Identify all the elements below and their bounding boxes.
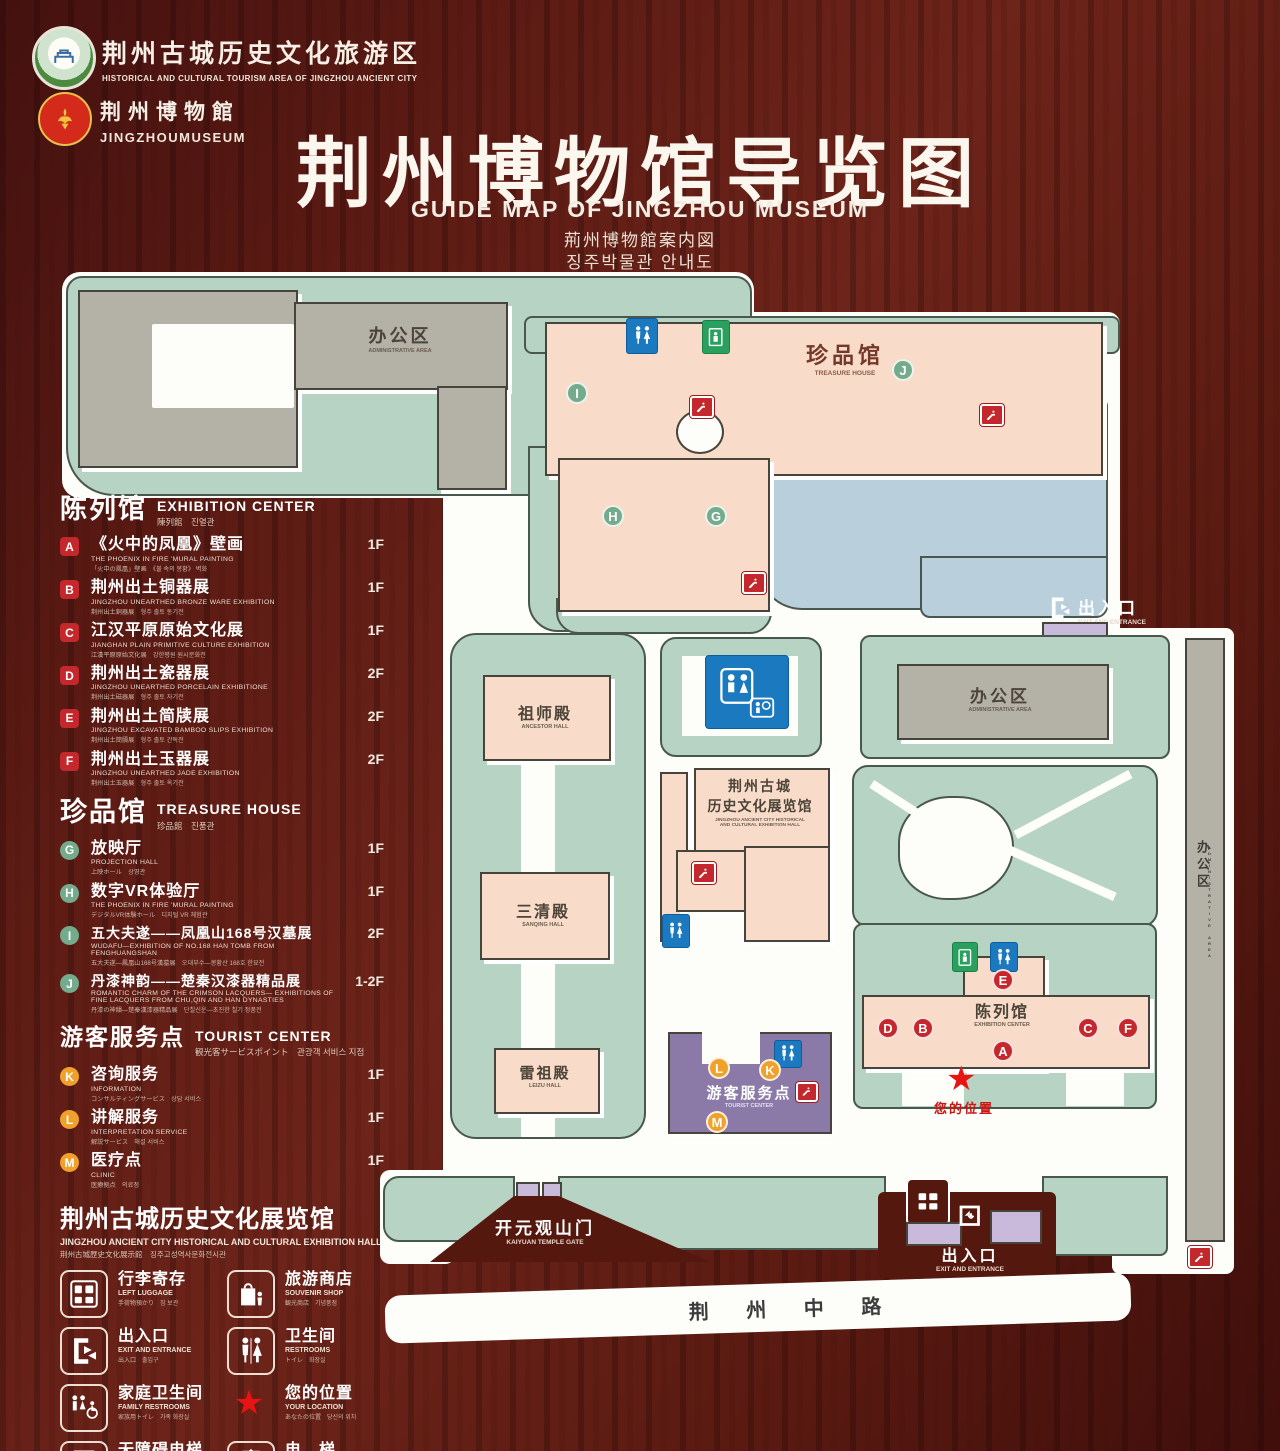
map-marker-m: M (706, 1111, 728, 1133)
map-marker-h: H (602, 505, 624, 527)
elevator-icon (227, 1441, 275, 1451)
marker-badge-g: G (60, 841, 79, 860)
legend-panel: 陈列馆 EXHIBITION CENTER 陳列館 진열관 A 《火中的凤凰》壁… (60, 496, 384, 1451)
museum-logo-title: 荆州博物館 (100, 96, 246, 126)
city-gate-emblem-icon (49, 43, 79, 73)
marker-badge-c: C (60, 623, 79, 642)
grounds-gate-right (1042, 1176, 1168, 1256)
ancestor-hall-label: 祖师殿 ANCESTOR HALL (483, 700, 607, 730)
admin-courtyard (152, 324, 294, 408)
marker-badge-a: A (60, 537, 79, 556)
legend-accessible-elevator: 无障碍电梯ACCESSIBLE ELEVATORバリアフリーエレベーター 무장애… (60, 1441, 217, 1451)
exit-door-icon (60, 1327, 108, 1375)
legend-item-i: I 五大夫遂——凤凰山168号汉墓展WUDAFU—EXHIBITION OF N… (60, 925, 384, 966)
map-marker-g: G (705, 505, 727, 527)
tourism-area-logo (32, 26, 96, 90)
treasure-house-label: 珍品馆 TREASURE HOUSE (745, 338, 945, 377)
marker-badge-b: B (60, 580, 79, 599)
legend-item-a: A 《火中的凤凰》壁画THE PHOENIX IN FIRE 'MURAL PA… (60, 536, 384, 572)
left-luggage-icon (906, 1178, 950, 1226)
map-marker-b: B (912, 1017, 934, 1039)
page-title-ko: 징주박물관 안내도 (280, 248, 1000, 273)
treasure-house-lower-block (558, 458, 770, 612)
restroom-icon (626, 318, 658, 354)
souvenir-shop-icon (227, 1270, 275, 1318)
legend-item-e: E 荆州出土简牍展JINGZHOU EXCAVATED BAMBOO SLIPS… (60, 708, 384, 744)
legend-restrooms: 卫生间RESTROOMSトイレ 화장실 (227, 1327, 384, 1375)
restroom-icon (662, 914, 690, 948)
marker-badge-e: E (60, 709, 79, 728)
marker-badge-d: D (60, 666, 79, 685)
escalator-icon (692, 862, 716, 884)
restroom-icon (990, 942, 1018, 972)
map-marker-f: F (1117, 1017, 1139, 1039)
admin-building-arm (437, 386, 507, 490)
legend-exit-entrance: 出入口EXIT AND ENTRANCE出入口 출입구 (60, 1327, 217, 1375)
marker-badge-m: M (60, 1153, 79, 1172)
marker-badge-i: I (60, 926, 79, 945)
legend-souvenir-shop: 旅游商店SOUVENIR SHOP観光商店 기념품점 (227, 1270, 384, 1318)
road-label: 荆 州 中 路 (618, 1289, 897, 1327)
escalator-icon (742, 572, 766, 594)
marker-badge-h: H (60, 884, 79, 903)
sanqing-hall-label: 三清殿 SANQING HALL (480, 898, 606, 928)
escalator-icon (980, 404, 1004, 426)
legend-your-location: ★ 您的位置YOUR LOCATIONあなたの位置 당신의 위치 (227, 1384, 384, 1432)
map-marker-d: D (877, 1017, 899, 1039)
admin-strip-label-en: ADMINISTRATIVE AREA (1207, 845, 1212, 995)
legend-item-f: F 荆州出土玉器展JINGZHOU UNEARTHED JADE EXHIBIT… (60, 751, 384, 787)
city-hall-label: 荆州古城 历史文化展览馆 JINGZHOU ANCIENT CITY HISTO… (692, 776, 828, 828)
exit-door-icon (1046, 594, 1074, 622)
legend-hall-header: 荆州古城历史文化展览馆 JINGZHOU ANCIENT CITY HISTOR… (60, 1199, 384, 1260)
left-luggage-icon (60, 1270, 108, 1318)
phoenix-emblem-icon (51, 105, 79, 133)
marker-badge-l: L (60, 1110, 79, 1129)
elevator-icon (952, 942, 978, 972)
escalator-icon (690, 396, 714, 418)
tourism-area-subtitle: HISTORICAL AND CULTURAL TOURISM AREA OF … (102, 74, 421, 83)
leizu-hall-label: 雷祖殿 LEIZU HALL (494, 1062, 596, 1089)
accessible-elevator-icon (60, 1441, 108, 1451)
your-location-label: 您的位置 (918, 1098, 1010, 1117)
exit-bottom-label: 出入口 EXIT AND ENTRANCE (910, 1242, 1030, 1273)
legend-section-exhibition: 陈列馆 EXHIBITION CENTER 陳列館 진열관 (60, 496, 384, 528)
your-location-star-icon: ★ (227, 1384, 271, 1422)
legend-elevator: 电 梯ELEVATORエレベーター 엘리베이터 (227, 1441, 384, 1451)
elevator-icon (702, 320, 730, 354)
restroom-icon (227, 1327, 275, 1375)
legend-section-tourist: 游客服务点 TOURIST CENTER 観光客サービスポイント 관광객 서비스… (60, 1026, 384, 1058)
tourism-area-title: 荆州古城历史文化旅游区 (102, 34, 421, 70)
tourist-center-label: 游客服务点 TOURIST CENTER (684, 1082, 814, 1109)
legend-section-treasure: 珍品馆 TREASURE HOUSE 珍品館 진품관 (60, 799, 384, 831)
legend-item-j: J 丹漆神韵——楚秦汉漆器精品展ROMANTIC CHARM OF THE CR… (60, 973, 384, 1014)
legend-item-h: H 数字VR体验厅THE PHOENIX IN FIRE 'MURAL PAIN… (60, 883, 384, 919)
map-marker-k: K (759, 1059, 781, 1081)
legend-item-b: B 荆州出土铜器展JINGZHOU UNEARTHED BRONZE WARE … (60, 579, 384, 615)
map-marker-e: E (992, 969, 1014, 991)
legend-family-restrooms: 家庭卫生间FAMILY RESTROOMS家族用トイレ 가족 화장실 (60, 1384, 217, 1432)
gatehouse-bottom (990, 1210, 1042, 1244)
map-marker-j: J (892, 359, 914, 381)
map-marker-c: C (1077, 1017, 1099, 1039)
restroom-building (705, 655, 789, 729)
map-marker-l: L (708, 1057, 730, 1079)
city-hall-right-arm (744, 846, 830, 942)
marker-badge-f: F (60, 752, 79, 771)
legend-item-m: M 医疗点CLINIC医療拠点 의료점 1F (60, 1152, 384, 1188)
exit-door-icon (956, 1202, 986, 1232)
map-marker-i: I (566, 382, 588, 404)
map-marker-a: A (992, 1040, 1014, 1062)
admin-area-top-label: 办公区 ADMINISTRATIVE AREA (320, 322, 480, 354)
museum-guide-map-poster: 荆州古城历史文化旅游区 HISTORICAL AND CULTURAL TOUR… (0, 0, 1280, 1451)
legend-item-k: K 咨询服务INFORMATIONコンサルティングサービス 상담 서비스 1F (60, 1066, 384, 1102)
escalator-icon (796, 1082, 818, 1102)
legend-item-c: C 江汉平原原始文化展JIANGHAN PLAIN PRIMITIVE CULT… (60, 622, 384, 658)
legend-item-d: D 荆州出土瓷器展JINGZHOU UNEARTHED PORCELAIN EX… (60, 665, 384, 701)
exhibition-center-label: 陈列馆 EXHIBITION CENTER (938, 998, 1066, 1028)
museum-logo (38, 92, 92, 146)
legend-item-l: L 讲解服务INTERPRETATION SERVICE解説サービス 해설 서비… (60, 1109, 384, 1145)
escalator-icon (1188, 1246, 1212, 1268)
legend-left-luggage: 行李寄存LEFT LUGGAGE手荷物預かり 짐 보관 (60, 1270, 217, 1318)
your-location-star: ★ (946, 1062, 976, 1096)
legend-icon-grid: 行李寄存LEFT LUGGAGE手荷物預かり 짐 보관 旅游商店SOUVENIR… (60, 1270, 384, 1451)
admin-area-right-label: 办公区 ADMINISTRATIVE AREA (920, 682, 1080, 713)
marker-badge-j: J (60, 974, 79, 993)
marker-badge-k: K (60, 1067, 79, 1086)
exhibition-court-right (1066, 1072, 1124, 1106)
road-band: 荆 州 中 路 (384, 1272, 1131, 1343)
page-title-en: GUIDE MAP OF JINGZHOU MUSEUM (280, 196, 1000, 223)
museum-logo-subtitle: JINGZHOUMUSEUM (100, 130, 246, 145)
kaiyuan-gate-label: 开元观山门 KAIYUAN TEMPLE GATE (455, 1214, 635, 1246)
legend-item-g: G 放映厅PROJECTION HALL上映ホール 상영관 1F (60, 840, 384, 876)
family-restroom-icon (60, 1384, 108, 1432)
